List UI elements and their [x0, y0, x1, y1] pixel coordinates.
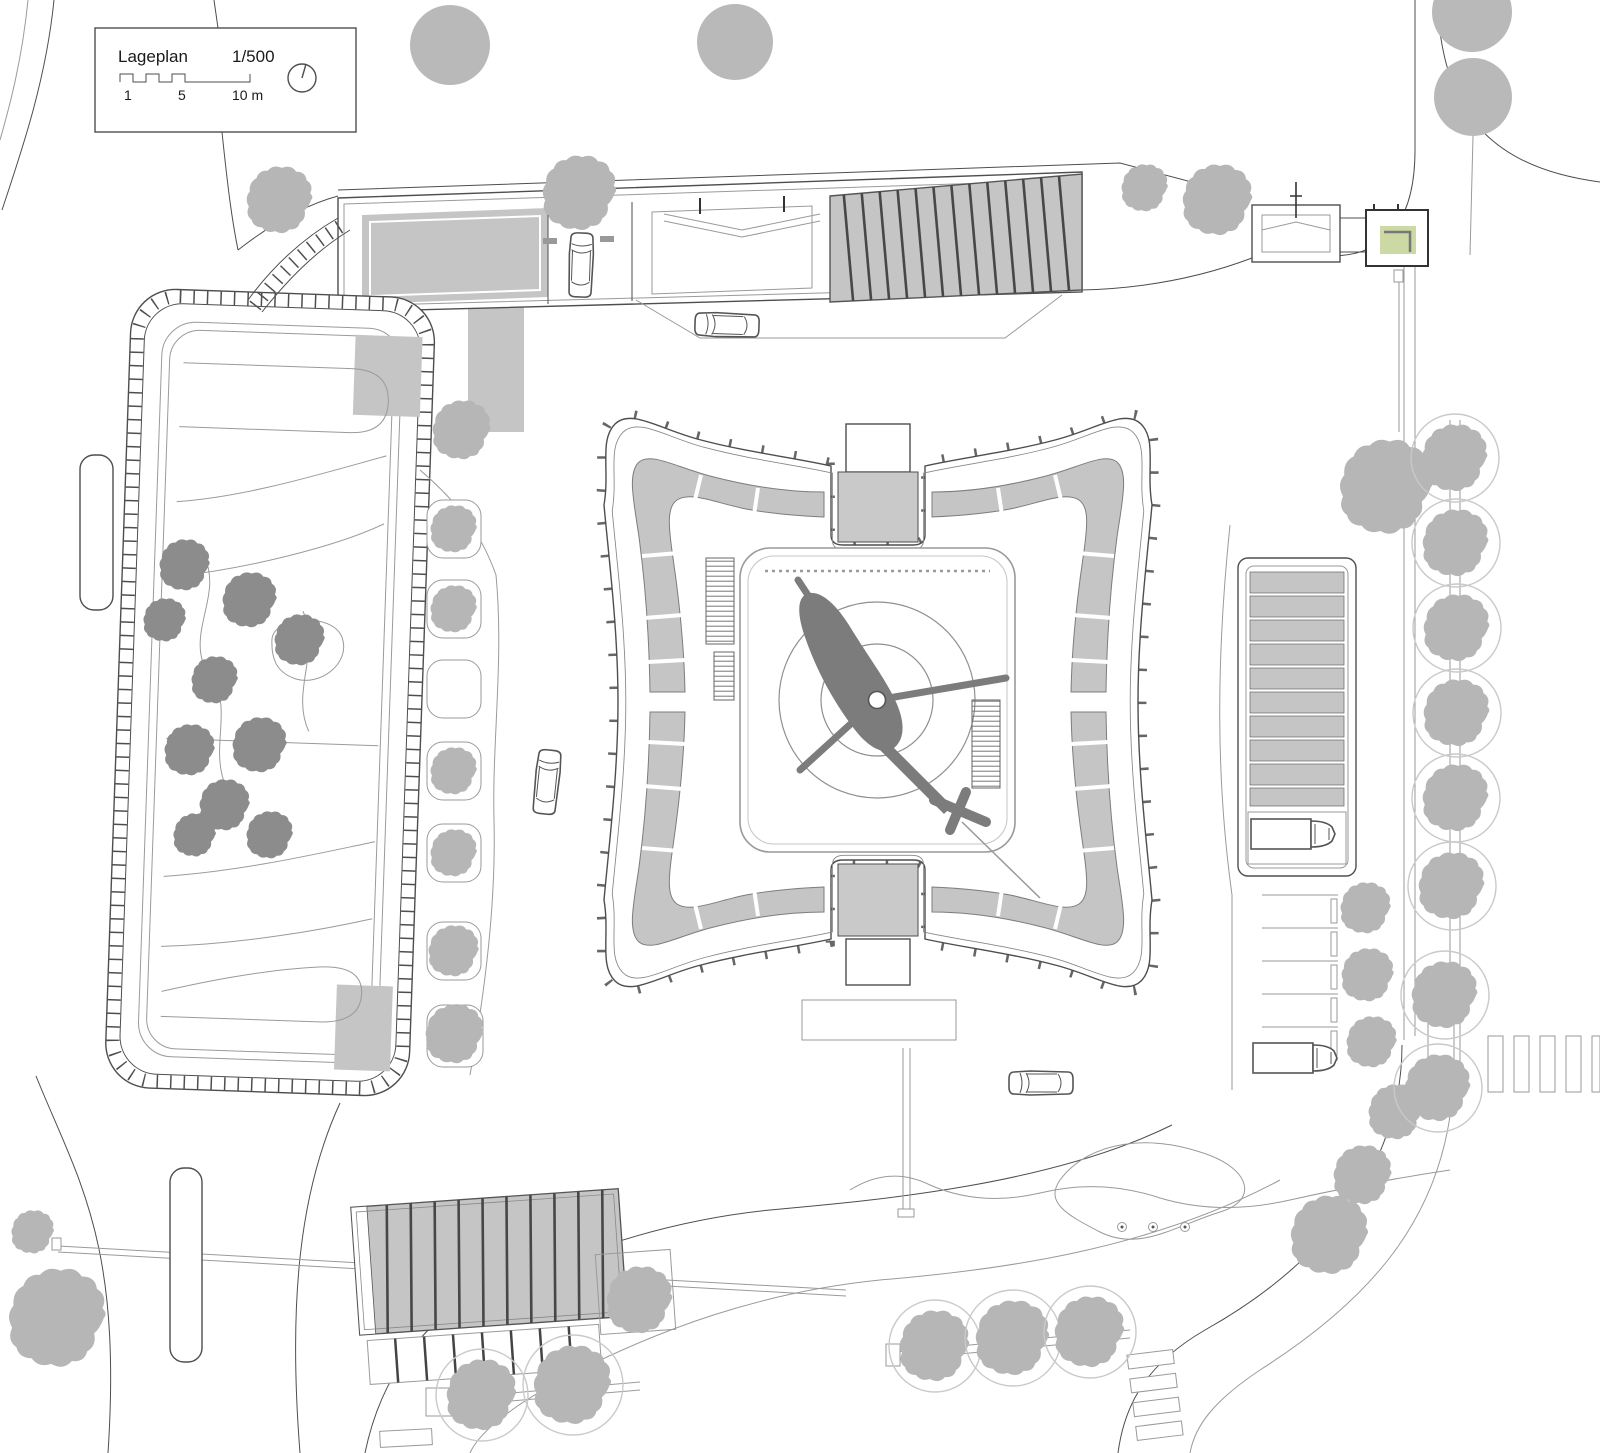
tree-icon	[1291, 1196, 1368, 1274]
footpath	[903, 1048, 910, 1213]
scale-tick-5: 5	[178, 87, 186, 103]
boundary-line	[222, 132, 238, 250]
road-edge-left-bottom	[36, 1076, 111, 1453]
gray-room	[362, 208, 548, 304]
lane-marking	[543, 238, 557, 244]
boundary-line	[214, 0, 218, 28]
stairs-icon	[972, 700, 1000, 788]
tree-icon	[697, 4, 773, 80]
tree-icon	[1405, 1055, 1471, 1122]
legend-box	[95, 28, 356, 132]
legend-scale: 1/500	[232, 47, 275, 66]
tree-icon	[900, 1311, 970, 1382]
sign-panel	[380, 1429, 433, 1448]
tree-icon	[9, 1269, 106, 1367]
entrance-top	[846, 424, 910, 472]
site-plan: Lageplan 1/500 1 5 10 m	[0, 0, 1600, 1453]
road-edge-left-bottom	[296, 1103, 340, 1453]
car-icon	[1009, 1071, 1073, 1095]
legend-title: Lageplan	[118, 47, 188, 66]
boundary-marker	[52, 1238, 61, 1250]
crosswalk-icon	[1127, 1350, 1183, 1441]
tree-icon	[1334, 1145, 1392, 1204]
site-line-top-right	[1082, 258, 1252, 290]
tree-icon	[1121, 164, 1167, 211]
road-edge	[0, 0, 28, 140]
north-arrow-icon	[288, 64, 316, 92]
stairs-icon	[714, 652, 734, 700]
tree-icon	[1424, 680, 1490, 747]
truck-icon	[1253, 1043, 1337, 1073]
planter	[886, 1344, 900, 1366]
core-top	[838, 472, 918, 542]
light-pole-head	[1394, 270, 1403, 282]
parking-stalls-right	[1262, 895, 1338, 1060]
legend: Lageplan 1/500 1 5 10 m	[95, 28, 356, 132]
tree-icon	[1055, 1297, 1125, 1368]
tree-icon	[433, 400, 491, 459]
tree-icon	[1432, 0, 1512, 52]
scale-tick-10: 10 m	[232, 87, 263, 103]
tree-icon	[1422, 425, 1488, 492]
gatehouse	[1252, 182, 1428, 432]
rotor-hub	[869, 692, 886, 709]
central-building	[600, 414, 1156, 1040]
truck-icon	[1251, 819, 1335, 849]
left-building	[104, 288, 436, 1097]
core-block	[334, 985, 393, 1072]
car-icon	[532, 749, 563, 815]
tree-icon	[1434, 58, 1512, 136]
apron-bottom	[802, 1000, 956, 1040]
site-wall	[80, 455, 113, 610]
tree-icon	[247, 167, 313, 234]
top-building	[338, 161, 1082, 432]
car-icon	[568, 233, 594, 298]
tree-icon	[1341, 882, 1391, 933]
tree-icon	[11, 1210, 54, 1253]
tree-icon	[1423, 765, 1489, 832]
pod	[427, 660, 481, 718]
road-curve-right-bottom	[1190, 1100, 1452, 1453]
tree-icon	[1419, 853, 1485, 920]
connector-lines	[1340, 218, 1366, 252]
tree-icon	[976, 1301, 1049, 1375]
lane-marking	[600, 236, 614, 242]
core-bottom	[838, 864, 918, 936]
tree-icon	[1342, 948, 1394, 1001]
tree-trunk-line	[1470, 136, 1473, 255]
tree-icon	[1412, 962, 1478, 1029]
entrance-bottom	[846, 939, 910, 985]
roof-slats	[1250, 572, 1344, 806]
tree-icon	[1347, 1016, 1397, 1067]
tree-icon	[1183, 165, 1253, 236]
tree-icon	[1424, 595, 1490, 662]
site-wall	[170, 1168, 202, 1362]
road-curve-right-bottom	[1118, 1045, 1402, 1453]
scale-tick-1: 1	[124, 87, 132, 103]
stairs-icon	[706, 558, 734, 644]
tree-icon	[410, 5, 490, 85]
tree-icon	[1423, 510, 1489, 577]
car-icon	[695, 312, 760, 338]
path-end	[898, 1209, 914, 1217]
